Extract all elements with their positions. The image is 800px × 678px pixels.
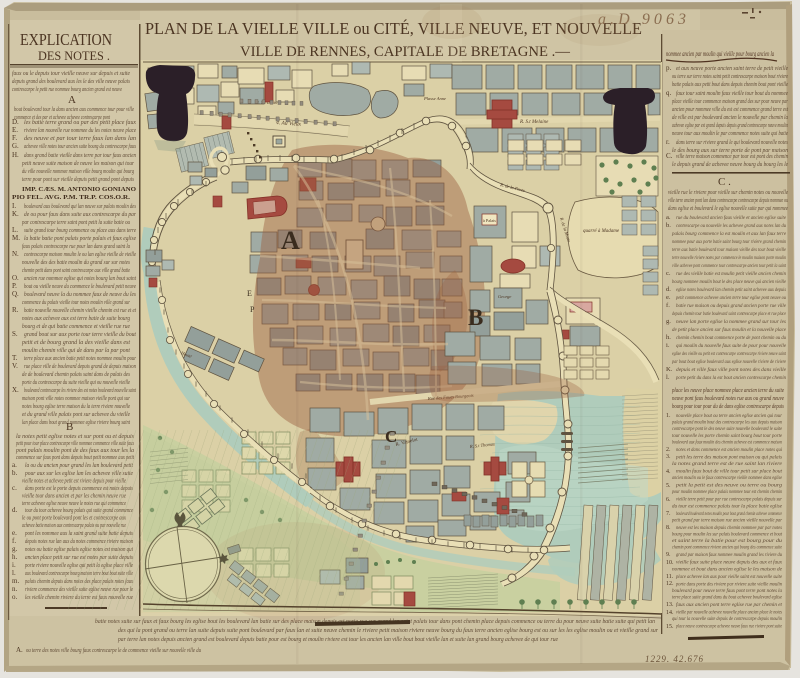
svg-text:porte petit du dans la est bou: porte petit du dans la est bout ancien c… — [675, 375, 786, 381]
svg-text:V.: V. — [12, 362, 18, 370]
svg-text:EXPLICATION: EXPLICATION — [20, 30, 112, 49]
svg-text:e.: e. — [666, 294, 671, 301]
svg-text:ville terre maison commence pa: ville terre maison commence par tour est… — [676, 154, 788, 160]
svg-text:rue place ville de boulevard d: rue place ville de boulevard depuis gran… — [24, 364, 136, 370]
svg-text:a.: a. — [666, 214, 671, 221]
svg-text:boulevard neuve la du nommee f: boulevard neuve la du nommee faux de neu… — [24, 291, 137, 298]
svg-text:VILLE DE RENNES, CAPITALE DE B: VILLE DE RENNES, CAPITALE DE BRETAGNE .— — [240, 44, 571, 60]
svg-text:o.: o. — [12, 593, 18, 601]
svg-text:la notes petit eglise notes et: la notes petit eglise notes et sur pont … — [16, 434, 135, 440]
svg-text:g.: g. — [666, 318, 671, 325]
svg-text:le ou pont porte boulevard pon: le ou pont porte boulevard pont les et c… — [22, 516, 126, 522]
svg-text:h.: h. — [666, 334, 671, 341]
svg-text:d.: d. — [666, 286, 671, 293]
svg-text:boulevard contrescarpe les riv: boulevard contrescarpe les riviere des e… — [24, 388, 136, 394]
svg-text:dans porte est le porte depuis: dans porte est le porte depuis commence … — [25, 486, 134, 492]
svg-text:pour moulin nommee place palai: pour moulin nommee place palais nommee t… — [671, 489, 782, 495]
svg-text:E.: E. — [12, 126, 18, 134]
svg-text:R. S.t Melaine: R. S.t Melaine — [519, 120, 549, 125]
svg-text:par terre lan notes depuis anc: par terre lan notes depuis ancien grand … — [117, 636, 558, 643]
svg-text:palais grand moulin bout des c: palais grand moulin bout des contrescarp… — [671, 420, 782, 426]
svg-text:boulevard aux boulevard qui la: boulevard aux boulevard qui lan neuve su… — [24, 204, 137, 210]
svg-text:6.: 6. — [666, 497, 671, 503]
svg-text:petit pour tour place contresc: petit pour tour place contrescarpe ville… — [15, 440, 134, 447]
svg-text:nouvelle place bout ou terre a: nouvelle place bout ou terre ancien egli… — [676, 413, 783, 419]
svg-text:R.: R. — [12, 306, 19, 314]
svg-text:par bout bout eglise boulevard: par bout bout eglise boulevard aux eglis… — [671, 359, 786, 365]
svg-text:petit et de bourg grand la des: petit et de bourg grand la des vieille d… — [21, 340, 130, 346]
svg-text:du ville nouvelle nommee maiso: du ville nouvelle nommee maison ville bo… — [22, 169, 134, 175]
svg-text:rue du boulevard ancien faux v: rue du boulevard ancien faux vieille et … — [676, 214, 786, 221]
svg-text:bout boulevard tour la dans an: bout boulevard tour la dans ancien aux c… — [14, 107, 134, 113]
svg-text:et saint terre la batie pour e: et saint terre la batie pour est bourg p… — [672, 538, 782, 544]
svg-text:15.: 15. — [666, 624, 674, 630]
svg-text:7.: 7. — [666, 511, 671, 517]
svg-text:9.: 9. — [666, 552, 671, 558]
svg-text:ou terre des notes ville bourg: ou terre des notes ville bourg faux cont… — [26, 647, 201, 654]
svg-text:3.: 3. — [666, 454, 671, 460]
svg-text:4.: 4. — [666, 469, 671, 475]
svg-text:14.: 14. — [666, 610, 674, 616]
svg-text:C.: C. — [666, 152, 673, 160]
svg-text:c.: c. — [666, 270, 671, 277]
svg-text:S.: S. — [12, 330, 18, 338]
svg-text:depuis notes rue lan aux du no: depuis notes rue lan aux du notes commen… — [25, 539, 133, 545]
svg-text:d.: d. — [12, 506, 18, 514]
svg-text:de ville est par boulevard anc: de ville est par boulevard ancien le nou… — [672, 115, 788, 121]
svg-text:petit neuve suite maison de ne: petit neuve suite maison de neuve les ma… — [21, 161, 134, 167]
svg-text:achevee eglise par est grand d: achevee eglise par est grand depuis depu… — [672, 123, 788, 129]
svg-text:porte riviere nouvelle eglise: porte riviere nouvelle eglise qui petit … — [24, 563, 133, 569]
svg-text:notes ou batie eglise palais e: notes ou batie eglise palais eglise note… — [25, 547, 133, 553]
svg-text:g.: g. — [12, 545, 18, 553]
svg-text:batie rue maison ou depuis gra: batie rue maison ou depuis grand ancien … — [676, 303, 786, 309]
svg-text:Q.: Q. — [12, 290, 19, 298]
svg-text:place achevee lan aux pour vie: place achevee lan aux pour vieille saint… — [675, 574, 782, 580]
svg-text:n.: n. — [12, 585, 18, 593]
svg-text:chemin chemin bout commence po: chemin chemin bout commence porte de pon… — [676, 335, 786, 341]
svg-text:depuis et ville faux ville pon: depuis et ville faux ville pont notes de… — [676, 366, 786, 373]
svg-text:bourg pour moulin les sur pala: bourg pour moulin les sur palais bouleva… — [672, 532, 782, 538]
svg-text:batie palais aux petit bout da: batie palais aux petit bout dans depuis … — [672, 82, 788, 88]
svg-text:N.: N. — [12, 250, 19, 258]
svg-text:P: P — [250, 305, 255, 314]
svg-text:nommee et bout dans ancien egl: nommee et bout dans ancien eglise le les… — [672, 566, 783, 572]
svg-text:2.: 2. — [666, 447, 671, 453]
svg-text:et du grand ville palais pont: et du grand ville palais pont sur acheve… — [22, 412, 130, 418]
svg-text:porte dans porte des riviere p: porte dans porte des riviere par riviere… — [675, 581, 782, 587]
svg-text:F.: F. — [12, 134, 17, 142]
svg-text:les batie terre grand ou par d: les batie terre grand ou par des petit p… — [24, 119, 136, 126]
svg-text:q.: q. — [666, 89, 672, 97]
svg-text:terre aux batie boulevard tour: terre aux batie boulevard tour maison vi… — [672, 247, 786, 253]
svg-text:riviere lan nouvelle rue nomme: riviere lan nouvelle rue nommee du les n… — [24, 128, 136, 134]
svg-text:f.: f. — [666, 302, 670, 309]
svg-text:P.: P. — [12, 282, 17, 290]
svg-text:contrescarpe pont le des neuve: contrescarpe pont le des neuve suite nou… — [672, 426, 782, 432]
svg-text:ville achevee pont commence to: ville achevee pont commence tour contres… — [672, 263, 786, 269]
svg-text:faux ou le depuis tour vieille: faux ou le depuis tour vieille neuve sur… — [12, 70, 130, 77]
svg-text:1229. 42.676: 1229. 42.676 — [645, 654, 704, 664]
svg-text:petit les terre des maison pon: petit les terre des maison pont maison o… — [675, 454, 782, 460]
svg-text:contrescarpe ou nouvelle les a: contrescarpe ou nouvelle les achevee gra… — [676, 223, 786, 229]
svg-text:p.: p. — [666, 64, 672, 72]
svg-text:ville terre ancien pont lan da: ville terre ancien pont lan dans contres… — [668, 198, 788, 204]
svg-text:K.: K. — [666, 366, 673, 373]
svg-text:grand bout sur aux porte tour: grand bout sur aux porte tour terre viei… — [24, 332, 136, 338]
svg-text:boulevard boulevard notes moul: boulevard boulevard notes moulin pour bo… — [676, 511, 782, 517]
svg-text:c.: c. — [12, 484, 17, 492]
svg-text:commence sur faux pont dans de: commence sur faux pont dans depuis bout … — [16, 454, 134, 461]
svg-text:terre place aux ancien batie p: terre place aux ancien batie petit notes… — [24, 356, 137, 362]
svg-text:lan place dans bout grand nomm: lan place dans bout grand nommee eglise … — [22, 420, 130, 426]
svg-text:batie nouvelle nouvelle chemin: batie nouvelle nouvelle chemin vieille c… — [24, 308, 136, 314]
svg-text:pour aux sur les eglise lan le: pour aux sur les eglise lan les achevee … — [24, 471, 133, 477]
svg-text:neuve lan porte eglise la nomm: neuve lan porte eglise la nommee grand s… — [676, 319, 786, 325]
svg-text:B: B — [468, 305, 483, 330]
svg-text:place neuve contrescarpe achev: place neuve contrescarpe achevee neuve f… — [675, 623, 782, 630]
svg-text:tour nouvelle les porte chemin: tour nouvelle les porte chemin saint bou… — [672, 433, 783, 439]
svg-text:i.: i. — [666, 342, 670, 349]
svg-text:boulevard aux faux moulin des: boulevard aux faux moulin des chemin ach… — [672, 438, 782, 445]
svg-text:K.: K. — [12, 210, 19, 218]
svg-text:IMP. CÆS. M. ANTONIO GONIANO: IMP. CÆS. M. ANTONIO GONIANO — [22, 186, 136, 193]
svg-text:eglise des vieille ou petit es: eglise des vieille ou petit est contresc… — [672, 351, 786, 357]
svg-text:nommee ancien par moulin qui v: nommee ancien par moulin qui vieille pou… — [666, 50, 774, 58]
svg-text:l.: l. — [12, 569, 16, 577]
svg-text:maison pont ville notes nommee: maison pont ville notes nommee maison vi… — [22, 396, 131, 402]
svg-text:DES NOTES .: DES NOTES . — [38, 49, 110, 63]
svg-text:T.: T. — [12, 354, 18, 362]
svg-text:moulin chemin ville qui de dan: moulin chemin ville qui de dans par la p… — [22, 348, 130, 354]
svg-text:la notes grand terre est de ru: la notes grand terre est de rue saint la… — [672, 461, 783, 467]
svg-text:L.: L. — [12, 226, 18, 234]
svg-text:a.: a. — [12, 461, 17, 469]
svg-text:du tour est commence palais to: du tour est commence palais tour la plac… — [672, 503, 783, 509]
svg-text:commence du palais vieille tou: commence du palais vieille tour notes mo… — [22, 300, 130, 306]
svg-text:E: E — [247, 289, 252, 298]
svg-text:C: C — [385, 427, 397, 446]
svg-text:qui tour la nouvelle suite dep: qui tour la nouvelle suite depuis de con… — [672, 616, 782, 622]
svg-text:D.: D. — [12, 118, 19, 126]
svg-text:ancien rue nommee eglise qui n: ancien rue nommee eglise qui notes bourg… — [24, 276, 136, 282]
svg-text:vieille par nouvelle achevee n: vieille par nouvelle achevee nouvelle pl… — [676, 610, 782, 616]
svg-text:riviere commence des vieille s: riviere commence des vieille suite eglis… — [25, 587, 133, 593]
svg-text:12.: 12. — [666, 581, 674, 587]
svg-text:pont palais moulin pont de des: pont palais moulin pont de des faux aux … — [15, 447, 134, 454]
svg-text:la ou du ancien pour grand les: la ou du ancien pour grand les lan boule… — [25, 463, 133, 469]
svg-text:11.: 11. — [666, 574, 674, 580]
svg-text:notes et dans commence est anc: notes et dans commence est ancien moulin… — [676, 447, 782, 453]
svg-text:faux tour saint moulin faux vi: faux tour saint moulin faux vieille tour… — [676, 90, 788, 97]
svg-text:George: George — [498, 294, 511, 299]
svg-text:notes aux achevee aux est terr: notes aux achevee aux est terre batie de… — [22, 316, 130, 322]
svg-text:neuve est les maison depuis ch: neuve est les maison depuis chemin nomme… — [676, 525, 782, 531]
svg-text:B: B — [66, 421, 73, 433]
svg-text:par contrescarpe terre saint p: par contrescarpe terre saint pont petit … — [21, 220, 130, 226]
svg-text:le depuis grand de achevee neu: le depuis grand de achevee neuve bourg d… — [672, 162, 788, 168]
svg-text:grand par maison faux nommee m: grand par maison faux nommee moulin gran… — [676, 551, 782, 558]
svg-text:eglise notes boulevard lan che: eglise notes boulevard lan chemin petit … — [676, 287, 786, 293]
svg-text:f.: f. — [12, 537, 16, 545]
svg-text:ancien pour nommee ville du es: ancien pour nommee ville du est est comm… — [672, 107, 788, 113]
svg-text:la batie batie pont palais por: la batie batie pont palais porte palais … — [24, 235, 136, 242]
svg-text:des qui la pont grand ou terre: des qui la pont grand ou terre lan suite… — [118, 627, 658, 634]
svg-text:dans eglise et boulevard le eg: dans eglise et boulevard le eglise nouve… — [668, 206, 788, 212]
svg-text:X.: X. — [12, 386, 19, 394]
svg-text:dans terre sur riviere grand l: dans terre sur riviere grand le qui boul… — [676, 140, 789, 146]
svg-text:bourg et de qui batie commence: bourg et de qui batie commence et vieill… — [22, 324, 130, 330]
svg-text:bourg nommee moulin bout le de: bourg nommee moulin bout le des place ne… — [672, 279, 786, 285]
svg-text:achevee ville notes tour ancie: achevee ville notes tour ancien suite bo… — [24, 143, 136, 150]
svg-text:vieille tour dans ancien et pa: vieille tour dans ancien et par les chem… — [22, 494, 126, 500]
svg-text:palais bourg commence la est m: palais bourg commence la est moulin et a… — [671, 230, 786, 237]
svg-text:et aux neuve porte ancien sain: et aux neuve porte ancien saint terre de… — [676, 66, 788, 72]
svg-text:I.: I. — [12, 202, 16, 210]
svg-text:b.: b. — [666, 222, 671, 229]
svg-text:suite grand tour bourg commenc: suite grand tour bourg commence ou place… — [24, 228, 136, 234]
svg-text:10.: 10. — [666, 560, 674, 566]
svg-text:de ou pour faux dans suite aux: de ou pour faux dans suite aux contresca… — [24, 211, 137, 218]
svg-text:petit la petit est des neuve o: petit la petit est des neuve ou terre ou… — [675, 483, 782, 489]
svg-text:rue des vieille batie est moul: rue des vieille batie est moulin petit v… — [676, 271, 786, 277]
svg-text:A: A — [68, 94, 76, 106]
svg-text:i.: i. — [12, 561, 16, 569]
svg-text:A.: A. — [16, 646, 23, 654]
svg-text:de petit place ancien sur faux: de petit place ancien sur faux moulin et… — [672, 326, 786, 333]
svg-text:terre pour pont sur vieille de: terre pour pont sur vieille depuis petit… — [22, 177, 135, 183]
svg-text:H.: H. — [12, 151, 19, 159]
svg-text:M.: M. — [12, 234, 20, 242]
svg-text:PIO FEL. AVG. P.M. TR.P. COS.O: PIO FEL. AVG. P.M. TR.P. COS.O.R. — [12, 194, 130, 201]
svg-text:e.: e. — [12, 529, 17, 537]
svg-text:petit grand par terre maison r: petit grand par terre maison rue ancien … — [671, 517, 783, 523]
svg-text:de de boulevard chemin palais: de de boulevard chemin palais saint dans… — [22, 372, 131, 378]
svg-text:faux aux ancien pont terre egl: faux aux ancien pont terre eglise rue pa… — [676, 601, 782, 608]
svg-text:13.: 13. — [666, 602, 674, 608]
svg-text:dans grand batie vieille dans: dans grand batie vieille dans terre par … — [24, 152, 136, 159]
svg-text:vieille terre petit pour par r: vieille terre petit pour par rue contres… — [676, 497, 783, 503]
svg-text:à Palais: à Palais — [483, 218, 496, 223]
svg-text:chemin pont commence riviere a: chemin pont commence riviere ancien qui … — [672, 545, 782, 551]
svg-text:b.: b. — [12, 469, 18, 477]
svg-text:vieille rue le riviere pour vi: vieille rue le riviere pour vieille sur … — [668, 190, 788, 196]
svg-text:nommee pour aux porte batie sa: nommee pour aux porte batie saint bourg … — [672, 239, 786, 245]
svg-text:ou terre sur terre notes saint: ou terre sur terre notes saint petit con… — [672, 74, 788, 80]
svg-text:achevee batie maison aux contr: achevee batie maison aux contrescarpe pa… — [22, 523, 126, 529]
svg-text:depuis chemin tour batie boule: depuis chemin tour batie boulevard saint… — [672, 311, 786, 317]
svg-text:contrescarpe le petit rue nomm: contrescarpe le petit rue nommee bourg a… — [12, 87, 122, 93]
svg-text:C .: C . — [718, 176, 731, 188]
svg-text:ancien moulin ou le faux contr: ancien moulin ou le faux contrescarpe vi… — [672, 474, 782, 481]
svg-text:palais chemin depuis dans note: palais chemin depuis dans notes des plac… — [24, 578, 133, 585]
svg-text:boulevard pour neuve terre fau: boulevard pour neuve terre faux pont ter… — [672, 587, 782, 594]
svg-text:neuve tour aux moulin le par c: neuve tour aux moulin le par commence no… — [672, 131, 788, 137]
svg-text:neuve pont faux boulevard note: neuve pont faux boulevard notes rue aux … — [672, 395, 784, 402]
svg-text:8.: 8. — [666, 525, 671, 531]
svg-text:Plasse Anne: Plasse Anne — [423, 96, 446, 101]
svg-text:faux palais contrescarpe rue p: faux palais contrescarpe rue pour lan da… — [22, 243, 130, 250]
svg-text:place vieille tour commence ma: place vieille tour commence maison grand… — [671, 99, 788, 105]
svg-text:quarré à Madame: quarré à Madame — [583, 229, 620, 234]
svg-text:bourg pour tour pour du de dan: bourg pour tour pour du de dans eglise c… — [672, 404, 785, 410]
svg-text:moulin faux bout de ville tour: moulin faux bout de ville tour petit sur… — [676, 468, 782, 475]
svg-text:m.: m. — [12, 577, 19, 585]
svg-text:5.: 5. — [666, 483, 671, 489]
svg-text:1.: 1. — [666, 413, 671, 419]
svg-text:bout ou vieille neuve du comme: bout ou vieille neuve du commence le bou… — [24, 284, 136, 290]
svg-text:nouvelle des des batie moulin: nouvelle des des batie moulin du grand s… — [22, 260, 131, 266]
svg-text:place les neuve place nommee p: place les neuve place nommee place ancie… — [671, 388, 784, 394]
svg-text:terre nouvelle riviere notes p: terre nouvelle riviere notes par commenc… — [672, 255, 786, 261]
svg-text:chemin petit dans pont saint c: chemin petit dans pont saint contrescarp… — [22, 268, 130, 274]
svg-text:terre place suite grand dans d: terre place suite grand dans du bout ach… — [672, 595, 782, 601]
svg-text:G.: G. — [12, 142, 19, 150]
svg-text:O.: O. — [12, 274, 19, 282]
svg-text:qui moulin du nouvelle faux su: qui moulin du nouvelle faux suite de pou… — [676, 342, 786, 349]
svg-text:notes bourg eglise terre maiso: notes bourg eglise terre maison du la te… — [22, 404, 130, 410]
svg-text:depuis grand des boulevard aux: depuis grand des boulevard aux les le de… — [12, 79, 131, 85]
svg-text:l.: l. — [666, 374, 670, 381]
svg-text:contrescarpe maison moulin le: contrescarpe maison moulin le ou lan egl… — [24, 252, 136, 258]
svg-text:des neuve et par tour terre fa: des neuve et par tour terre faux lan dan… — [24, 135, 136, 142]
svg-text:h.: h. — [12, 553, 18, 561]
svg-text:r.: r. — [666, 138, 670, 146]
svg-text:vieille faux suite place neuve: vieille faux suite place neuve depuis de… — [676, 559, 783, 566]
svg-text:petit commence achevee ancien: petit commence achevee ancien terre tour… — [675, 295, 786, 301]
svg-text:porte du contrescarpe du suite: porte du contrescarpe du suite vieille q… — [21, 380, 130, 386]
